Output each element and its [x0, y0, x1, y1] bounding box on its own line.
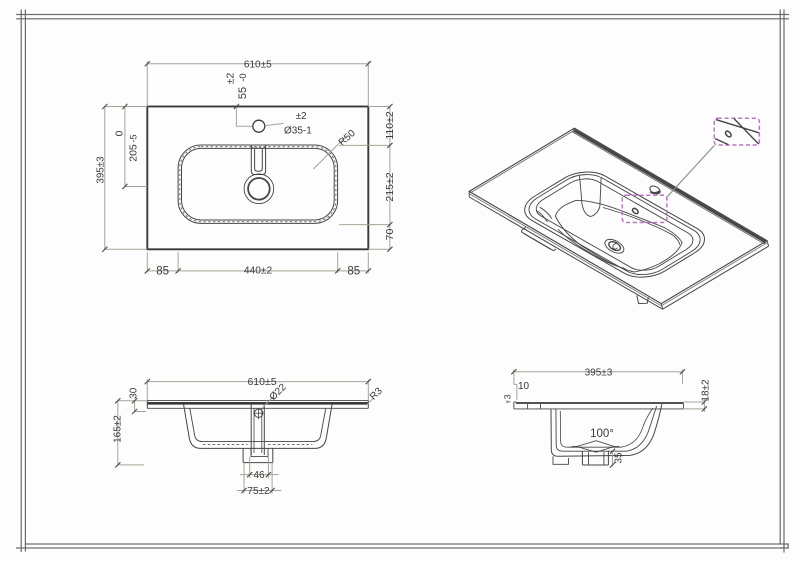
svg-text:35: 35	[614, 452, 625, 464]
svg-text:610±5: 610±5	[244, 59, 272, 70]
svg-text:±2: ±2	[225, 73, 237, 85]
svg-text:205: 205	[128, 144, 140, 162]
svg-text:±2: ±2	[296, 111, 307, 122]
svg-text:85: 85	[156, 266, 169, 278]
svg-text:440±2: 440±2	[244, 265, 273, 276]
svg-text:55: 55	[237, 87, 249, 99]
svg-text:18±2: 18±2	[700, 379, 711, 402]
svg-text:165±2: 165±2	[113, 415, 124, 443]
svg-text:46: 46	[253, 470, 265, 481]
svg-text:395±3: 395±3	[95, 156, 106, 184]
svg-text:70: 70	[384, 229, 396, 241]
svg-text:30: 30	[128, 387, 139, 399]
svg-text:Ø35-1: Ø35-1	[284, 125, 312, 136]
svg-text:-0: -0	[238, 73, 249, 81]
svg-text:75±2: 75±2	[247, 486, 270, 497]
svg-text:10: 10	[518, 381, 530, 392]
svg-text:395±3: 395±3	[585, 367, 613, 378]
svg-text:0: 0	[113, 130, 125, 136]
svg-text:100°: 100°	[590, 428, 614, 440]
svg-text:610±5: 610±5	[247, 376, 276, 388]
svg-text:110±2: 110±2	[384, 111, 396, 140]
svg-text:215±2: 215±2	[384, 172, 396, 201]
svg-text:85: 85	[347, 266, 360, 278]
svg-text:3: 3	[502, 394, 512, 399]
svg-text:-5: -5	[129, 134, 139, 142]
